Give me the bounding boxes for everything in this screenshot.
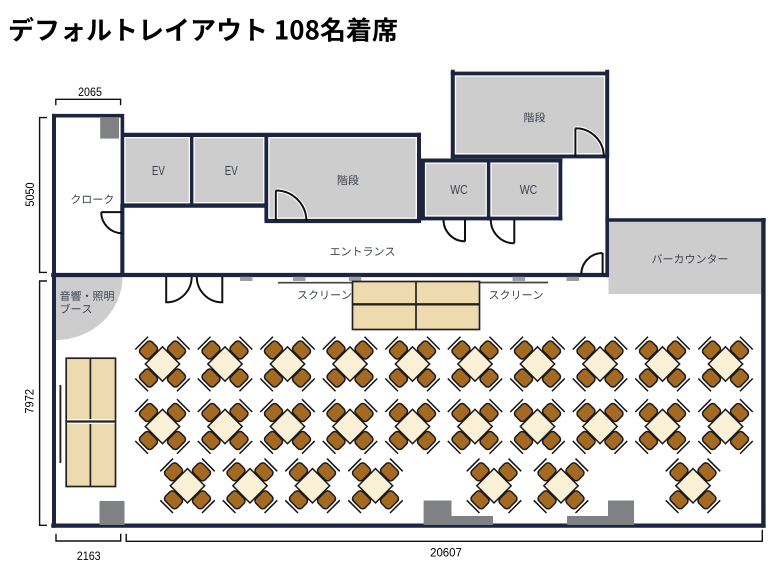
svg-text:2163: 2163 bbox=[77, 549, 101, 563]
svg-text:2065: 2065 bbox=[78, 85, 102, 99]
svg-text:WC: WC bbox=[520, 183, 538, 197]
svg-text:7972: 7972 bbox=[23, 389, 37, 414]
svg-text:WC: WC bbox=[450, 183, 468, 197]
svg-text:EV: EV bbox=[225, 164, 239, 178]
svg-text:20607: 20607 bbox=[430, 545, 462, 559]
svg-text:EV: EV bbox=[152, 164, 166, 178]
svg-text:5050: 5050 bbox=[23, 182, 37, 206]
